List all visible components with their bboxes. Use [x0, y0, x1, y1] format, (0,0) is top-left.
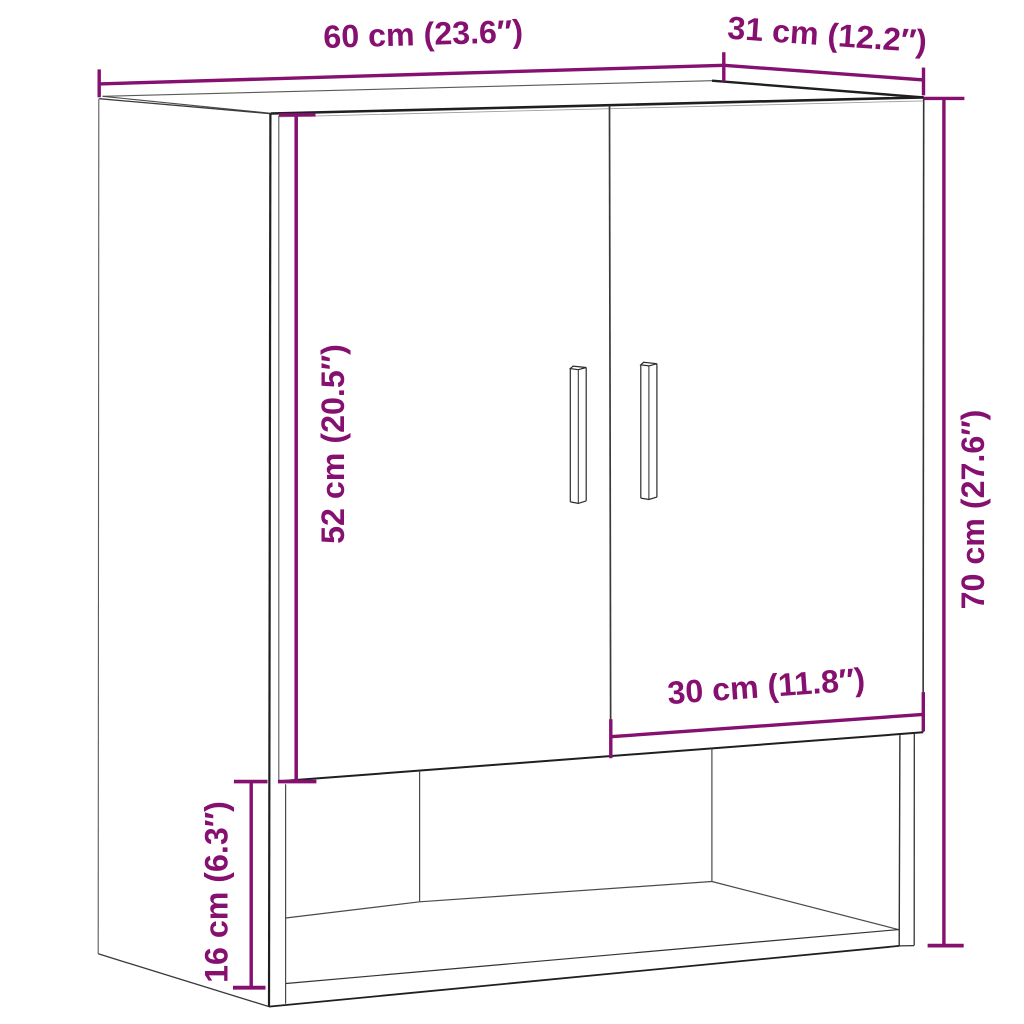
svg-text:70 cm (27.6″): 70 cm (27.6″): [955, 410, 991, 610]
svg-text:52 cm (20.5″): 52 cm (20.5″): [315, 344, 351, 544]
svg-text:60 cm (23.6″): 60 cm (23.6″): [323, 13, 524, 55]
svg-text:16 cm (6.3″): 16 cm (6.3″): [199, 801, 235, 983]
